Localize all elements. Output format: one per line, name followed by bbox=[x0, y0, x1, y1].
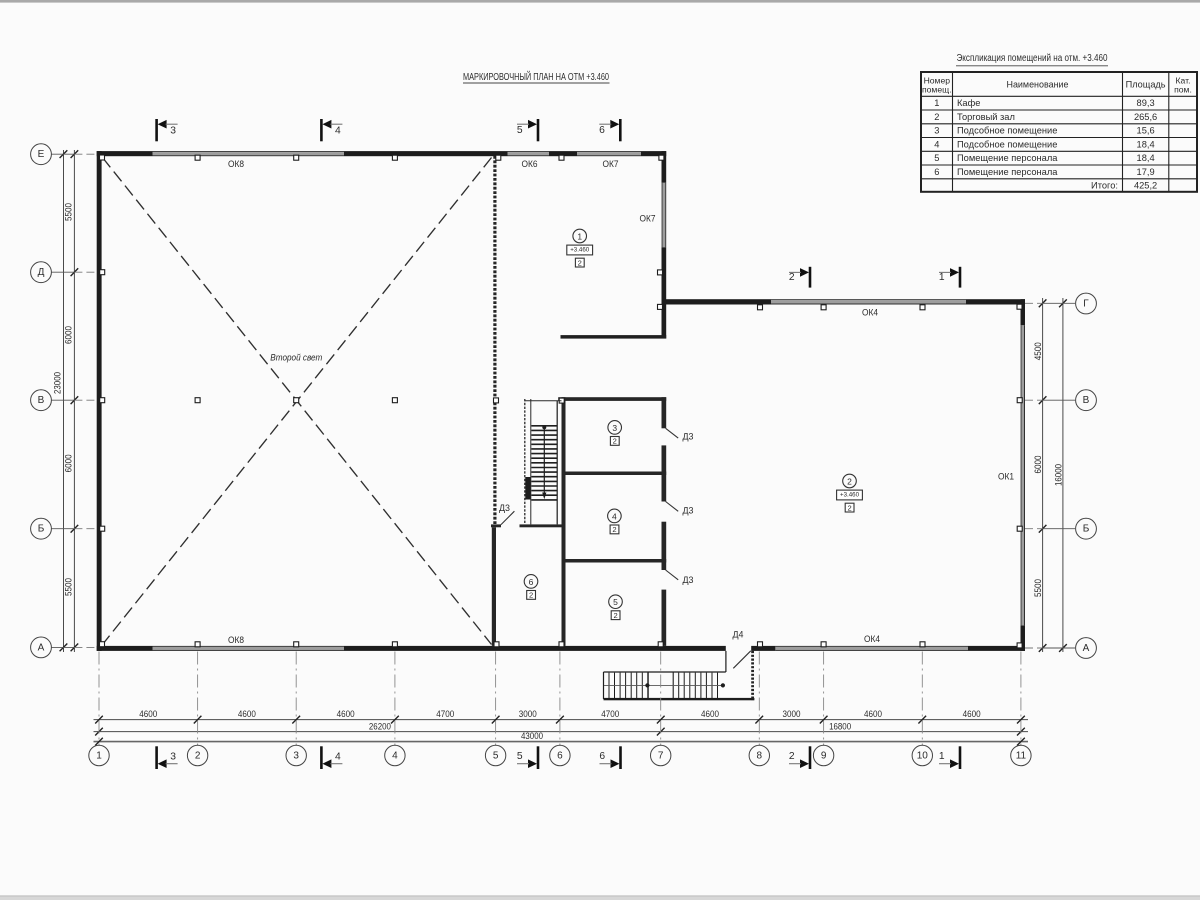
svg-text:9: 9 bbox=[821, 751, 827, 762]
svg-text:4700: 4700 bbox=[436, 709, 454, 719]
svg-text:2: 2 bbox=[613, 611, 617, 620]
svg-text:4: 4 bbox=[934, 139, 939, 149]
svg-text:Е: Е bbox=[38, 149, 45, 160]
svg-text:4600: 4600 bbox=[963, 709, 981, 719]
svg-text:16800: 16800 bbox=[829, 721, 851, 731]
svg-text:2: 2 bbox=[847, 503, 851, 512]
svg-text:2: 2 bbox=[612, 525, 616, 534]
svg-text:2: 2 bbox=[613, 437, 617, 446]
svg-text:4600: 4600 bbox=[337, 709, 355, 719]
svg-text:3: 3 bbox=[293, 751, 299, 762]
svg-text:В: В bbox=[1083, 395, 1090, 406]
svg-text:Торговый зал: Торговый зал bbox=[957, 112, 1015, 122]
svg-text:Помещение персонала: Помещение персонала bbox=[957, 153, 1058, 163]
svg-text:МАРКИРОВОЧНЫЙ ПЛАН НА ОТМ +3.4: МАРКИРОВОЧНЫЙ ПЛАН НА ОТМ +3.460 bbox=[463, 70, 609, 83]
svg-text:1: 1 bbox=[939, 751, 945, 762]
svg-text:265,6: 265,6 bbox=[1134, 112, 1157, 122]
svg-text:4600: 4600 bbox=[238, 709, 256, 719]
svg-text:5500: 5500 bbox=[63, 203, 73, 221]
svg-text:Площадь: Площадь bbox=[1126, 80, 1166, 90]
svg-text:2: 2 bbox=[529, 591, 533, 600]
svg-text:6000: 6000 bbox=[1033, 456, 1043, 474]
svg-text:Наименование: Наименование bbox=[1007, 80, 1069, 90]
svg-text:2: 2 bbox=[789, 272, 795, 283]
svg-text:Д: Д bbox=[38, 267, 45, 278]
svg-text:пом.: пом. bbox=[1174, 85, 1192, 95]
svg-text:1: 1 bbox=[934, 98, 939, 108]
svg-text:89,3: 89,3 bbox=[1137, 98, 1155, 108]
svg-text:Б: Б bbox=[38, 524, 45, 535]
svg-text:Д3: Д3 bbox=[683, 432, 694, 443]
svg-text:1: 1 bbox=[577, 231, 582, 241]
svg-text:11: 11 bbox=[1016, 751, 1027, 762]
svg-text:6000: 6000 bbox=[63, 326, 73, 344]
svg-text:10: 10 bbox=[917, 751, 929, 762]
svg-text:+3.460: +3.460 bbox=[840, 492, 859, 499]
svg-text:4500: 4500 bbox=[1033, 342, 1043, 360]
svg-text:Д3: Д3 bbox=[683, 575, 694, 586]
svg-text:6: 6 bbox=[529, 577, 534, 587]
svg-text:5: 5 bbox=[517, 125, 523, 136]
svg-text:+3.460: +3.460 bbox=[570, 247, 589, 254]
svg-text:4600: 4600 bbox=[139, 709, 157, 719]
svg-text:Кафе: Кафе bbox=[957, 98, 980, 108]
svg-text:Второй свет: Второй свет bbox=[270, 353, 322, 364]
svg-text:23000: 23000 bbox=[53, 372, 63, 394]
svg-text:4: 4 bbox=[335, 126, 341, 137]
svg-text:Г: Г bbox=[1083, 299, 1089, 310]
svg-text:8: 8 bbox=[757, 751, 763, 762]
svg-text:6: 6 bbox=[599, 125, 605, 136]
svg-text:2: 2 bbox=[195, 751, 201, 762]
svg-text:18,4: 18,4 bbox=[1137, 153, 1155, 163]
svg-text:5: 5 bbox=[934, 153, 939, 163]
svg-text:помещ.: помещ. bbox=[922, 85, 952, 95]
svg-text:3000: 3000 bbox=[783, 709, 801, 719]
svg-text:425,2: 425,2 bbox=[1134, 180, 1157, 190]
svg-text:ОК4: ОК4 bbox=[864, 634, 880, 644]
svg-text:43000: 43000 bbox=[521, 731, 543, 741]
svg-text:6: 6 bbox=[934, 167, 939, 177]
svg-text:ОК8: ОК8 bbox=[228, 159, 244, 169]
svg-text:Подсобное помещение: Подсобное помещение bbox=[957, 126, 1057, 136]
svg-text:Подсобное помещение: Подсобное помещение bbox=[957, 139, 1057, 149]
svg-text:4: 4 bbox=[612, 511, 617, 521]
svg-text:1: 1 bbox=[96, 751, 102, 762]
svg-text:15,6: 15,6 bbox=[1137, 126, 1155, 136]
svg-text:В: В bbox=[38, 395, 45, 406]
svg-text:2: 2 bbox=[789, 751, 795, 762]
svg-text:4: 4 bbox=[392, 751, 398, 762]
svg-text:2: 2 bbox=[847, 476, 852, 486]
svg-text:Д4: Д4 bbox=[733, 630, 744, 641]
svg-text:Б: Б bbox=[1083, 524, 1090, 535]
svg-text:2: 2 bbox=[934, 112, 939, 122]
svg-text:А: А bbox=[1083, 643, 1090, 654]
svg-text:5500: 5500 bbox=[63, 578, 73, 596]
svg-text:5: 5 bbox=[517, 751, 523, 762]
svg-text:26200: 26200 bbox=[369, 721, 391, 731]
svg-text:17,9: 17,9 bbox=[1137, 167, 1155, 177]
svg-text:1: 1 bbox=[939, 272, 945, 283]
svg-text:Д3: Д3 bbox=[683, 506, 694, 517]
svg-text:ОК7: ОК7 bbox=[640, 213, 656, 223]
svg-text:ОК1: ОК1 bbox=[998, 472, 1014, 482]
svg-text:4600: 4600 bbox=[864, 709, 882, 719]
svg-text:3: 3 bbox=[170, 751, 176, 762]
svg-text:16000: 16000 bbox=[1054, 464, 1064, 486]
svg-text:6: 6 bbox=[599, 751, 605, 762]
svg-text:Итого:: Итого: bbox=[1091, 180, 1118, 190]
svg-text:6: 6 bbox=[557, 751, 563, 762]
svg-text:А: А bbox=[38, 642, 45, 653]
svg-text:4: 4 bbox=[335, 751, 341, 762]
svg-text:ОК6: ОК6 bbox=[522, 159, 538, 169]
svg-text:5: 5 bbox=[613, 597, 618, 607]
svg-text:ОК8: ОК8 bbox=[228, 635, 244, 645]
svg-text:5: 5 bbox=[493, 751, 499, 762]
svg-text:4700: 4700 bbox=[601, 709, 619, 719]
svg-text:2: 2 bbox=[578, 258, 582, 267]
svg-text:3000: 3000 bbox=[519, 709, 537, 719]
svg-text:Д3: Д3 bbox=[499, 503, 510, 514]
svg-text:3: 3 bbox=[934, 126, 939, 136]
svg-text:6000: 6000 bbox=[63, 454, 73, 472]
svg-text:4600: 4600 bbox=[701, 709, 719, 719]
svg-text:ОК4: ОК4 bbox=[862, 308, 878, 318]
svg-text:3: 3 bbox=[170, 126, 176, 137]
svg-text:18,4: 18,4 bbox=[1137, 139, 1155, 149]
svg-text:Экспликация помещений на отм.: Экспликация помещений на отм. +3.460 bbox=[957, 53, 1108, 64]
svg-text:ОК7: ОК7 bbox=[603, 159, 619, 169]
svg-text:3: 3 bbox=[612, 423, 617, 433]
svg-text:7: 7 bbox=[658, 751, 664, 762]
svg-text:5500: 5500 bbox=[1033, 579, 1043, 597]
svg-text:Помещение персонала: Помещение персонала bbox=[957, 167, 1058, 177]
